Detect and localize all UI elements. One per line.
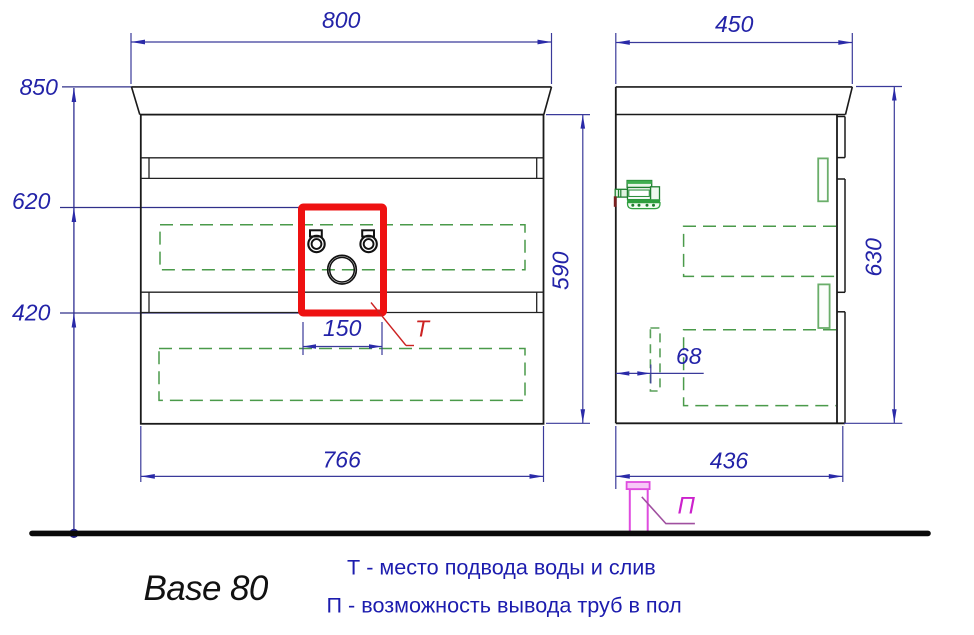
svg-text:850: 850 xyxy=(20,74,59,100)
svg-text:590: 590 xyxy=(548,251,574,290)
svg-text:766: 766 xyxy=(323,447,362,473)
svg-text:Base 80: Base 80 xyxy=(144,569,269,608)
svg-text:450: 450 xyxy=(715,11,754,37)
svg-text:Т - место подвода воды и слив: Т - место подвода воды и слив xyxy=(347,555,656,580)
svg-text:420: 420 xyxy=(12,300,51,326)
svg-text:800: 800 xyxy=(322,7,361,33)
svg-text:150: 150 xyxy=(323,315,362,341)
svg-text:68: 68 xyxy=(676,343,702,369)
svg-text:436: 436 xyxy=(710,448,749,474)
svg-text:П: П xyxy=(678,493,696,520)
svg-text:T: T xyxy=(415,316,431,342)
svg-text:П - возможность вывода труб в: П - возможность вывода труб в пол xyxy=(327,593,682,618)
svg-text:630: 630 xyxy=(861,238,887,277)
svg-text:620: 620 xyxy=(12,188,51,214)
